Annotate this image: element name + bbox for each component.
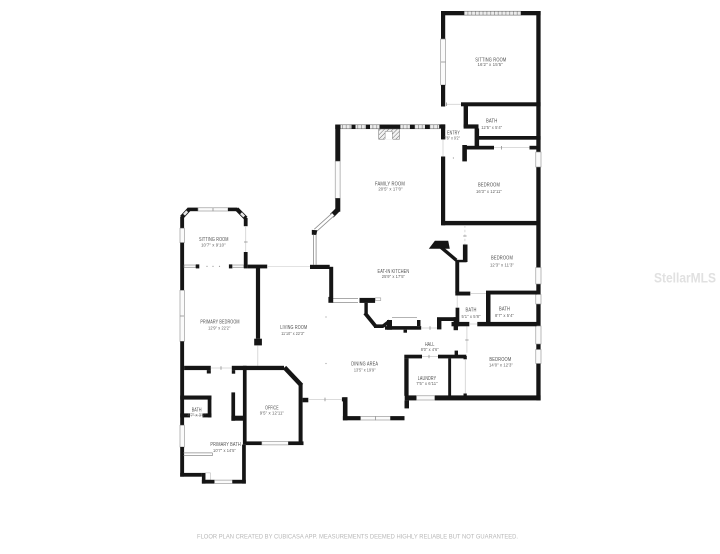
svg-text:SITTING ROOM: SITTING ROOM (199, 237, 229, 243)
svg-text:FLOOR PLAN CREATED BY CUBICASA: FLOOR PLAN CREATED BY CUBICASA APP. MEAS… (197, 535, 518, 541)
svg-text:BATH: BATH (486, 119, 498, 125)
svg-text:12'9" x 22'2": 12'9" x 22'2" (208, 326, 230, 332)
svg-text:25'9" x 17'5": 25'9" x 17'5" (382, 274, 405, 280)
svg-text:16'2" x 15'5": 16'2" x 15'5" (478, 62, 504, 68)
svg-text:4'7" x 3'5": 4'7" x 3'5" (187, 413, 205, 419)
svg-text:BEDROOM: BEDROOM (491, 256, 513, 262)
svg-text:DINING AREA: DINING AREA (351, 362, 378, 368)
svg-text:BATH: BATH (499, 307, 510, 313)
svg-text:BEDROOM: BEDROOM (478, 183, 500, 189)
svg-text:14'0" x 12'3": 14'0" x 12'3" (489, 363, 513, 369)
svg-text:StellarMLS: StellarMLS (654, 270, 716, 286)
svg-text:ENTRY: ENTRY (447, 130, 460, 136)
svg-text:10'7" x 9'10": 10'7" x 9'10" (201, 243, 226, 249)
svg-text:BATH: BATH (466, 308, 477, 314)
svg-text:5'1" x 5'8": 5'1" x 5'8" (462, 314, 481, 320)
svg-text:12'5" x 5'4": 12'5" x 5'4" (481, 125, 502, 131)
svg-text:16'3" x 12'11": 16'3" x 12'11" (476, 189, 502, 195)
svg-text:LAUNDRY: LAUNDRY (418, 376, 437, 382)
svg-text:9'5" x 12'11": 9'5" x 12'11" (260, 411, 284, 417)
svg-text:13'5" x 19'9": 13'5" x 19'9" (354, 368, 376, 374)
svg-text:8'7" x 5'4": 8'7" x 5'4" (495, 313, 514, 319)
svg-text:PRIMARY BEDROOM: PRIMARY BEDROOM (200, 320, 239, 326)
svg-text:12'3" x 11'3": 12'3" x 11'3" (490, 263, 514, 269)
svg-text:20'5" x 17'0": 20'5" x 17'0" (378, 186, 402, 192)
svg-text:LIVING ROOM: LIVING ROOM (280, 325, 307, 331)
svg-text:11'10" x 22'3": 11'10" x 22'3" (281, 331, 304, 337)
svg-text:BEDROOM: BEDROOM (489, 357, 511, 363)
svg-text:10'7" x 14'5": 10'7" x 14'5" (213, 448, 236, 454)
svg-text:PRIMARY BATH: PRIMARY BATH (210, 442, 241, 448)
svg-text:7'5" x 6'11": 7'5" x 6'11" (416, 381, 438, 387)
svg-text:8'0" x 4'6": 8'0" x 4'6" (421, 347, 439, 353)
svg-text:7'6" x 9'2": 7'6" x 9'2" (444, 136, 460, 142)
